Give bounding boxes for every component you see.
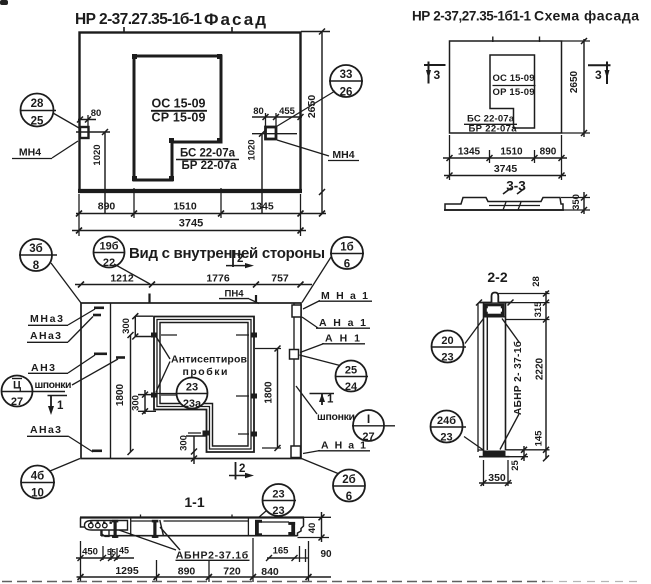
svg-text:26: 26 (340, 87, 353, 99)
svg-text:2220: 2220 (535, 357, 546, 380)
svg-text:25: 25 (31, 116, 44, 128)
svg-text:3: 3 (434, 68, 441, 82)
svg-text:АН1: АН1 (325, 333, 360, 345)
svg-text:22: 22 (103, 257, 115, 269)
svg-text:АБНР 2- 37-1б: АБНР 2- 37-1б (512, 341, 524, 415)
svg-text:БС 22-07а: БС 22-07а (180, 148, 236, 160)
svg-text:БР 22-07а: БР 22-07а (469, 124, 518, 135)
svg-text:МНа3: МНа3 (30, 313, 63, 325)
svg-text:Ц: Ц (13, 380, 21, 392)
svg-text:27: 27 (11, 396, 23, 408)
svg-text:20: 20 (441, 335, 453, 347)
svg-text:455: 455 (279, 106, 296, 117)
svg-text:I: I (367, 412, 370, 426)
svg-text:24б: 24б (437, 415, 456, 427)
svg-text:БР 22-07а: БР 22-07а (182, 160, 238, 172)
svg-text:55: 55 (107, 548, 116, 557)
svg-text:1212: 1212 (110, 273, 134, 285)
svg-text:8: 8 (33, 260, 40, 272)
svg-text:25: 25 (345, 365, 357, 377)
svg-text:890: 890 (178, 566, 196, 578)
svg-text:23а: 23а (183, 398, 202, 410)
svg-text:315: 315 (533, 301, 544, 318)
svg-text:23: 23 (272, 505, 284, 517)
svg-text:1510: 1510 (500, 147, 523, 158)
svg-text:1345: 1345 (458, 147, 481, 158)
svg-text:НР 2-37,27.35-1б1-1: НР 2-37,27.35-1б1-1 (412, 9, 531, 24)
svg-text:1020: 1020 (247, 139, 258, 160)
svg-text:НР 2-37.27.35-1б-1: НР 2-37.27.35-1б-1 (75, 11, 202, 28)
svg-text:ОС 15-09: ОС 15-09 (152, 97, 206, 111)
svg-text:28: 28 (31, 98, 44, 110)
svg-text:145: 145 (534, 430, 545, 447)
svg-text:1б: 1б (340, 242, 354, 254)
svg-text:33: 33 (340, 69, 353, 81)
svg-text:6: 6 (346, 491, 352, 503)
svg-text:3745: 3745 (179, 218, 203, 230)
svg-text:МН4: МН4 (19, 147, 41, 159)
svg-text:45: 45 (119, 546, 129, 556)
svg-text:23: 23 (186, 382, 198, 394)
svg-text:10: 10 (31, 488, 44, 500)
svg-text:3: 3 (595, 68, 602, 82)
svg-text:300: 300 (131, 395, 142, 411)
svg-text:80: 80 (91, 108, 102, 119)
svg-text:2: 2 (239, 463, 245, 475)
svg-text:шпонки: шпонки (317, 411, 355, 423)
svg-text:350: 350 (571, 194, 582, 210)
svg-text:3-3: 3-3 (506, 179, 526, 194)
svg-text:890: 890 (98, 201, 116, 213)
svg-text:840: 840 (261, 566, 279, 578)
svg-text:23: 23 (440, 432, 452, 444)
svg-text:1345: 1345 (250, 201, 274, 213)
svg-text:40: 40 (307, 523, 318, 534)
svg-text:300: 300 (121, 318, 132, 334)
svg-text:3745: 3745 (494, 163, 518, 175)
svg-text:2б: 2б (342, 474, 356, 486)
svg-text:ОР 15-09: ОР 15-09 (493, 87, 535, 98)
svg-text:1295: 1295 (115, 565, 139, 577)
svg-text:757: 757 (271, 273, 289, 285)
svg-text:300: 300 (179, 435, 190, 451)
svg-text:720: 720 (223, 566, 241, 578)
svg-text:1020: 1020 (92, 144, 103, 165)
svg-text:1776: 1776 (206, 273, 230, 285)
svg-text:3б: 3б (29, 243, 43, 255)
svg-text:1800: 1800 (264, 381, 275, 404)
svg-text:1800: 1800 (115, 383, 126, 406)
svg-text:Вид с внутренней стороны: Вид с внутренней стороны (129, 245, 325, 262)
svg-text:80: 80 (253, 106, 264, 117)
svg-text:АНа3: АНа3 (30, 424, 61, 436)
svg-text:24: 24 (345, 381, 358, 393)
svg-text:2-2: 2-2 (487, 269, 507, 285)
svg-text:1: 1 (327, 394, 334, 406)
svg-text:2650: 2650 (306, 95, 318, 119)
svg-text:1510: 1510 (173, 201, 197, 213)
svg-text:23: 23 (441, 352, 453, 364)
svg-text:ОС 15-09: ОС 15-09 (493, 73, 535, 84)
svg-text:АНа3: АНа3 (30, 330, 61, 342)
svg-text:25: 25 (510, 460, 521, 471)
svg-text:165: 165 (273, 546, 290, 557)
svg-text:шпонки: шпонки (35, 379, 72, 391)
svg-text:890: 890 (540, 147, 557, 158)
svg-text:МН4: МН4 (332, 149, 354, 161)
svg-text:Антисептиров: Антисептиров (171, 354, 248, 366)
svg-text:19б: 19б (99, 241, 118, 253)
svg-text:6: 6 (344, 259, 350, 271)
svg-text:90: 90 (321, 549, 333, 560)
svg-text:23: 23 (272, 489, 284, 501)
svg-text:АН3: АН3 (31, 362, 55, 374)
svg-text:СР 15-09: СР 15-09 (152, 111, 206, 125)
svg-text:2: 2 (237, 253, 243, 265)
svg-text:1: 1 (57, 400, 64, 412)
svg-text:450: 450 (82, 547, 98, 558)
svg-text:ПН4: ПН4 (225, 289, 245, 300)
svg-text:Фасад: Фасад (204, 10, 266, 29)
svg-text:Схема фасада: Схема фасада (534, 8, 639, 24)
svg-text:2650: 2650 (569, 70, 580, 93)
svg-text:28: 28 (531, 276, 542, 287)
svg-text:350: 350 (488, 472, 506, 484)
svg-text:4б: 4б (31, 471, 45, 483)
svg-text:1-1: 1-1 (184, 494, 204, 510)
